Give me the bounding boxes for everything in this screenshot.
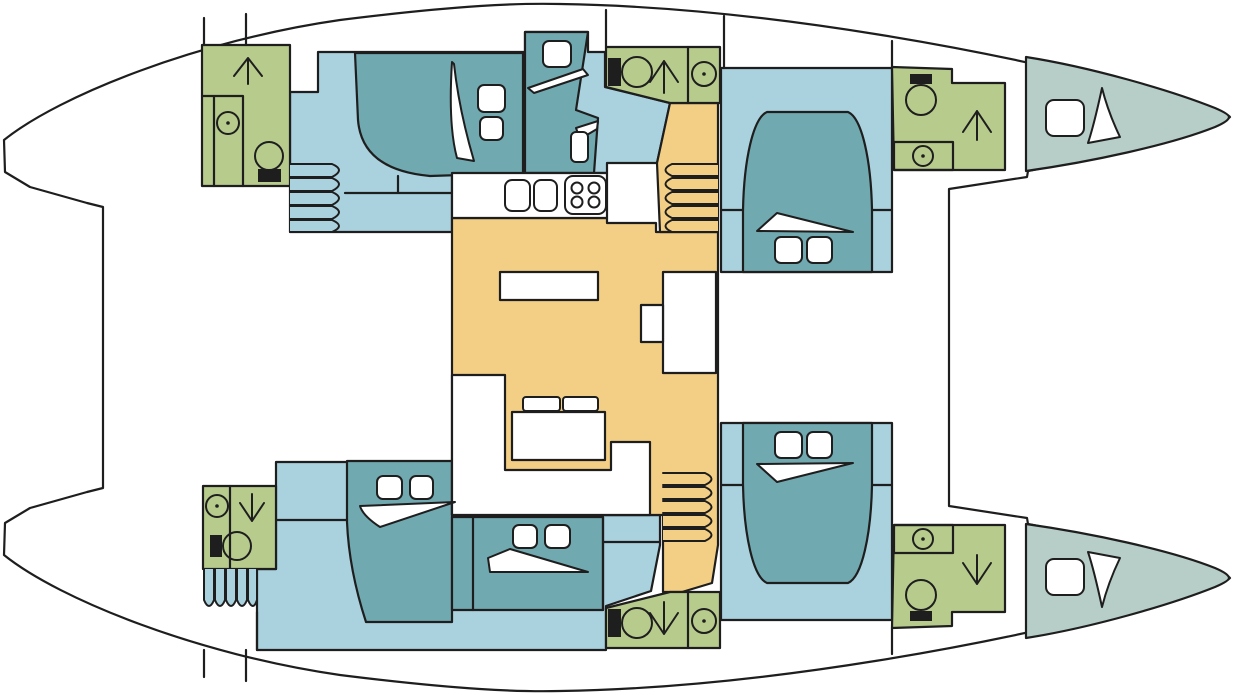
hatch-icon — [1046, 100, 1084, 136]
stove-icon — [565, 176, 606, 214]
cabinet-unit — [663, 272, 716, 373]
pillow — [545, 525, 570, 548]
toilet-icon — [910, 74, 932, 84]
galley-sink-right — [534, 180, 557, 211]
pillow — [478, 85, 505, 112]
cabinet-side — [641, 305, 663, 342]
pillow — [377, 476, 402, 499]
bow-peaks — [1026, 57, 1229, 638]
stool-left — [523, 397, 560, 411]
stool-right — [563, 397, 598, 411]
coffee-table — [500, 272, 598, 300]
toilet-icon — [608, 609, 621, 637]
deck-plan-canvas — [0, 0, 1239, 695]
bathroom-starboard-bottom — [892, 525, 1005, 628]
steps-port-bottom — [204, 569, 257, 606]
pillow — [775, 237, 802, 263]
pillow — [543, 41, 571, 67]
pillow — [410, 476, 433, 499]
pillow — [480, 117, 503, 140]
galley-sink-left — [505, 180, 530, 211]
steps-bottom-companionway — [663, 473, 712, 541]
pillow — [513, 525, 537, 548]
pillow — [807, 237, 832, 263]
bathroom-port-bottom — [203, 486, 276, 569]
pillow — [775, 432, 802, 458]
bathroom-starboard-top — [892, 67, 1005, 170]
bow-bottom — [1026, 524, 1229, 638]
dining-table — [512, 412, 605, 460]
toilet-icon — [608, 58, 621, 86]
pillow — [807, 432, 832, 458]
toilet-icon — [910, 611, 932, 621]
pillow — [571, 132, 588, 162]
steps-port-top — [290, 164, 339, 232]
port-aft-double-bed — [355, 53, 523, 176]
hatch-icon — [1046, 559, 1084, 595]
steps-top-companionway — [666, 164, 719, 232]
bathroom-port-top — [202, 45, 290, 186]
catamaran-deck-plan — [0, 0, 1239, 695]
toilet-icon — [210, 535, 222, 557]
bow-top — [1026, 57, 1229, 171]
